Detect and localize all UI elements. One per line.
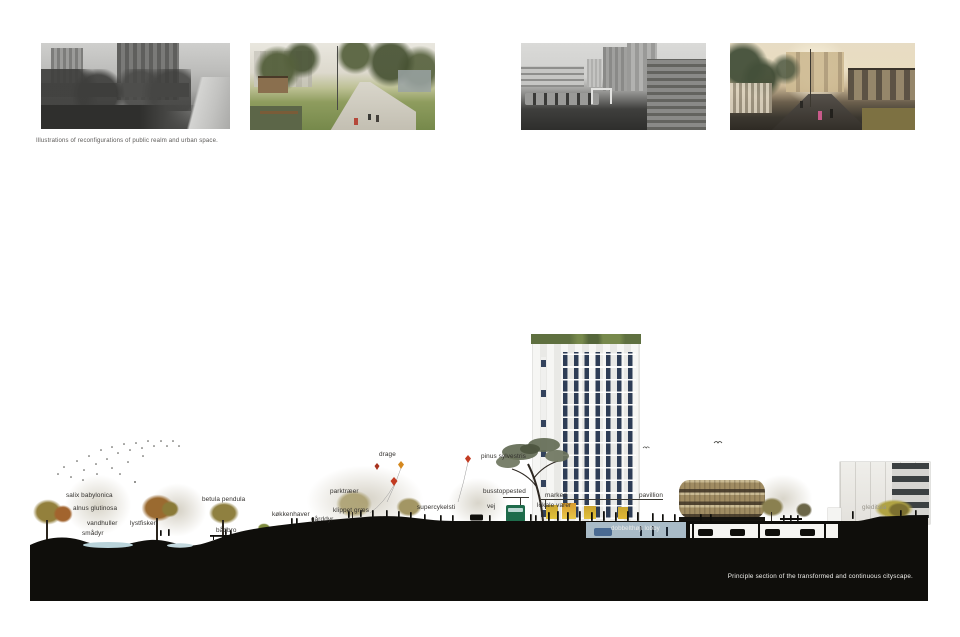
background-tree (436, 468, 520, 538)
label-marked: marked (545, 492, 567, 499)
tree-accent (158, 498, 182, 520)
bus-windows (508, 508, 523, 513)
market-canopy-line (541, 499, 663, 500)
label-smaadyr: smådyr (82, 530, 104, 537)
market-stall (602, 505, 614, 519)
label-busstoppested: busstoppested (483, 488, 526, 495)
photo-pergola-left (730, 83, 772, 113)
photo-goal-post (591, 88, 611, 90)
bus-shelter-roof (503, 497, 529, 498)
photo-grass-right (862, 108, 915, 130)
photo-park-render (250, 43, 435, 130)
garden-bush (272, 524, 286, 534)
presentation-sheet: Illustrations of reconfigurations of pub… (0, 0, 960, 637)
label-klippet-graes: klippet græs (333, 507, 369, 514)
photo-street-render (730, 43, 915, 130)
photo-person (368, 114, 371, 120)
photo-goal-post (591, 88, 593, 104)
bottom-caption: Principle section of the transformed and… (728, 573, 913, 580)
bus (506, 505, 525, 522)
bird (643, 447, 649, 448)
tree-right (793, 500, 815, 520)
bird (714, 442, 722, 444)
pavilion-building (679, 480, 765, 518)
pavilion-shadow (679, 517, 765, 521)
photo-parking-bw (521, 43, 706, 130)
photo-left-blocks (521, 66, 584, 87)
label-drage: drage (379, 451, 396, 458)
photo-pond (250, 106, 302, 130)
photo-pavilion-left (258, 76, 288, 93)
photo-child-pink (818, 111, 822, 120)
label-vandhuller: vandhuller (87, 520, 118, 527)
tower-green-roof (531, 334, 641, 344)
photo-cyclist (830, 109, 833, 118)
label-vej: vej (487, 503, 495, 510)
photo-path (178, 77, 230, 129)
photo-pole (810, 49, 811, 107)
label-lystfiskeri: lystfiskeri (130, 520, 157, 527)
label-dobbelthoejt-lobby: dobbelthøjt lobby (611, 525, 660, 532)
label-koekkenhaver: køkkenhaver (272, 511, 310, 518)
photo-far-towers (587, 59, 602, 87)
label-betula-pendula: betula pendula (202, 496, 245, 503)
market-stall (584, 506, 596, 519)
tower-window-grid (563, 352, 636, 519)
label-pinus-sylvestris: pinus sylvestris (481, 453, 526, 460)
label-alnus-glutinosa: alnus glutinosa (73, 505, 117, 512)
photo-child-red (354, 118, 358, 125)
label-salix-babylonica: salix babylonica (66, 492, 113, 499)
label-gleditsia: gleditsia (862, 504, 886, 511)
photo-right-wall (647, 59, 706, 130)
market-stall (618, 507, 628, 519)
photo-person (800, 101, 803, 108)
tree-trunk (771, 512, 772, 521)
tree-gleditsia-accent (884, 500, 914, 520)
photo-pole (337, 46, 338, 110)
label-supercykelsti: supercykelsti (417, 504, 455, 511)
label-gaarddyr: gårddyr (311, 516, 333, 523)
photo-deck (260, 111, 298, 114)
photo-structure-right (398, 70, 431, 92)
photo-car-row (525, 93, 599, 105)
label-baadbro: bådbro (216, 527, 237, 534)
photo-person (376, 115, 379, 122)
top-caption: Illustrations of reconfigurations of pub… (36, 138, 218, 144)
small-white-structure (828, 508, 841, 524)
kite-red (465, 455, 471, 463)
label-pavillion: pavillion (639, 492, 663, 499)
tree-trunk (46, 520, 48, 542)
photo-goal-post (610, 88, 612, 104)
garden-bush (256, 522, 272, 534)
label-parktraeer: parktræer (330, 488, 359, 495)
garden-bush (286, 522, 302, 534)
photo-existing-towers-bw (41, 43, 230, 129)
label-lokale-varer: lokale varer (537, 502, 571, 509)
photo-tower-center (603, 47, 627, 91)
